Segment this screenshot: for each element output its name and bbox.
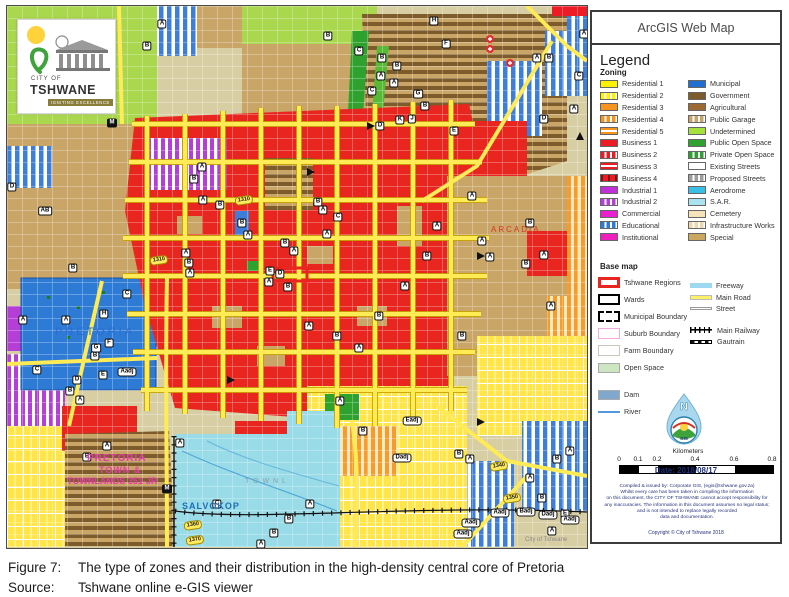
zone-letter-badge: B [284,515,293,524]
zone-letter-badge: B [68,264,77,273]
zone-letter-badge: B [237,219,246,228]
road-number-pill: 1340 [489,461,508,472]
zone-letter-badge: E [449,127,458,136]
source-label: Source: [8,580,55,595]
zone-letter-badge: B [521,260,530,269]
map-place-label: TOWN & [99,465,141,475]
legend-zoning-label: Industrial 2 [622,197,657,206]
legend-zoning-row: Institutional [600,231,688,243]
legend-swatch [598,328,620,339]
zone-letter-badge: G [413,90,423,99]
zone-letter-badge: C [333,213,342,222]
legend-zoning-label: Public Garage [710,115,756,124]
zoning-heading: Zoning [600,68,627,77]
legend-zoning-row: Government [688,90,780,102]
zone-letter-badge: H [99,310,108,319]
legend-swatch [600,210,618,218]
zone-adj-badge: Eadj [403,417,422,426]
scale-ticks: 00.10.20.40.60.8 [602,456,774,464]
zone-letter-badge: C [122,290,131,299]
scale-tick-label: 0.8 [767,456,776,463]
legend-panel: ArcGIS Web Map Legend Zoning Residential… [590,10,782,544]
legend-zoning-label: Residential 2 [622,91,664,100]
zone-letter-badge: A [525,474,534,483]
legend-zoning-row: Residential 2 [600,90,688,102]
scale-tick-label: 0.2 [652,456,661,463]
legend-zoning-label: Municipal [710,79,740,88]
zone-adj-badge: Aadj [560,516,579,525]
map-watermark: City of Tshwane [525,537,567,543]
legend-swatch [688,174,706,182]
legend-basemap-row: Street [690,303,782,315]
map-canvas[interactable]: CITY OF TSHWANE IGNITING EXCELLENCE HFBB… [6,5,588,549]
zone-letter-badge: B [142,42,151,51]
zone-letter-badge: H [429,17,438,26]
legend-zoning-row: Business 1 [600,137,688,149]
legend-swatch [600,162,618,170]
zone-letter-badge: A [264,278,273,287]
legend-swatch [600,92,618,100]
zone-letter-badge: E [265,267,274,276]
zone-letter-badge: B [420,102,429,111]
zone-adj-badge: Dadj [538,511,557,520]
zone-letter-badge: A [322,230,331,239]
zone-adj-badge: Aadj [461,519,480,528]
railway-swatch [690,327,712,333]
legend-swatch [600,115,618,123]
zone-letter-badge: D [375,122,384,131]
zone-letter-badge: B [184,259,193,268]
legend-zoning-label: Business 2 [622,150,657,159]
figure-caption: The type of zones and their distribution… [78,560,564,575]
zone-letter-badge: B [552,455,561,464]
legend-swatch [688,139,706,147]
zone-letter-badge: A [565,447,574,456]
zone-letter-badge: C [354,47,363,56]
zone-letter-badge: B [189,175,198,184]
legend-zoning-label: Institutional [622,233,658,242]
legend-swatch [600,221,618,229]
legend-zoning-label: Business 3 [622,162,657,171]
legend-zoning-row: Aerodrome [688,184,780,196]
legend-zoning-row: Educational [600,220,688,232]
legend-zoning-label: Business 1 [622,138,657,147]
legend-zoning-label: Proposed Streets [710,174,766,183]
legend-zoning-row: Residential 5 [600,125,688,137]
basemap-heading: Base map [600,262,638,271]
legend-zoning-row: Industrial 2 [600,196,688,208]
disclaimer-text: Compiled & issued by: Corporate GIS, (eg… [596,484,778,521]
zone-letter-badge: B [454,450,463,459]
map-place-label: PRETORIA [87,453,147,464]
zone-letter-badge: A [467,192,476,201]
legend-zoning-label: Educational [622,221,660,230]
legend-zoning-row: Proposed Streets [688,172,780,184]
disclaimer-line: any inaccuracies. The information in thi… [596,503,778,509]
legend-zoning-row: Business 3 [600,161,688,173]
legend-swatch [598,363,620,373]
legend-basemap-label: Tshwane Regions [624,278,681,287]
legend-swatch [688,103,706,111]
gis-label: GIS [680,436,688,441]
zone-adj-badge: Aadj [453,530,472,539]
legend-swatch [598,311,620,322]
zone-letter-badge: A [354,344,363,353]
legend-basemap-label: Open Space [624,363,664,372]
scale-tick-label: 0 [617,456,621,463]
legend-zoning-row: Industrial 1 [600,184,688,196]
legend-swatch [600,198,618,206]
zone-letter-badge: J [408,115,416,124]
zone-letter-badge: D [539,115,548,124]
legend-zoning-row: Residential 3 [600,102,688,114]
map-place-label: TOWNLANDS 351-JR [67,476,157,486]
map-place-label: T O W N L [245,478,287,485]
zone-letter-badge: F [105,339,114,348]
legend-heading: Legend [600,52,650,69]
scale-tick-label: 0.6 [729,456,738,463]
legend-zoning-row: Special [688,231,780,243]
legend-zoning-label: Infrastructure Works [710,221,775,230]
legend-swatch [598,277,620,288]
zone-letter-badge: A [579,30,588,39]
zone-letter-badge: B [283,283,292,292]
zone-letter-badge: A [376,72,385,81]
zone-letter-badge: A [181,249,190,258]
legend-basemap-row: Wards [598,291,698,308]
legend-basemap-label: Gautrain [717,337,745,346]
copyright-text: Copyright © City of Tshwane 2018 [592,530,780,536]
legend-basemap-label: Main Railway [717,326,760,335]
scale-tick-label: 0.1 [633,456,642,463]
legend-swatch [688,210,706,218]
zone-letter-badge: F [442,40,451,49]
legend-swatch [598,345,620,356]
legend-zoning-row: Infrastructure Works [688,220,780,232]
legend-swatch [688,221,706,229]
zone-letter-badge: A [185,269,194,278]
zone-letter-badge: D [72,376,81,385]
legend-basemap-row: Tshwane Regions [598,274,698,291]
zone-adj-badge: Aadj [490,509,509,518]
zone-letter-badge: A [18,316,27,325]
zone-letter-badge: A [197,163,206,172]
zone-letter-badge: A [198,196,207,205]
metro-station-badge: M [162,485,172,494]
legend-swatch [598,411,620,413]
legend-zoning-row: Residential 4 [600,113,688,125]
legend-swatch [688,127,706,135]
legend-zoning-row: Commercial [600,208,688,220]
zone-letter-badge: E [98,371,107,380]
zoning-column-left: Residential 1Residential 2Residential 3R… [600,78,688,243]
legend-basemap-label: Main Road [716,293,751,302]
zone-letter-badge: A [465,455,474,464]
legend-swatch [688,115,706,123]
zone-letter-badge: B [90,352,99,361]
road-number-pill: 1370 [185,535,204,546]
zoning-column-right: MunicipalGovernmentAgriculturalPublic Ga… [688,78,780,243]
legend-swatch [600,80,618,88]
zone-letter-badge: B [392,62,401,71]
legend-zoning-label: Commercial [622,209,660,218]
legend-zoning-label: Agricultural [710,103,746,112]
legend-swatch [600,233,618,241]
zone-letter-badge: AB [38,207,52,216]
road-number-pill: 1360 [183,520,202,531]
legend-zoning-row: Private Open Space [688,149,780,161]
legend-zoning-label: Private Open Space [710,150,774,159]
zone-letter-badge: B [332,332,341,341]
zone-letter-badge: A [400,282,409,291]
legend-basemap-label: Dam [624,390,639,399]
legend-zoning-label: Residential 5 [622,127,664,136]
legend-zoning-row: Agricultural [688,102,780,114]
legend-zoning-label: S.A.R. [710,197,731,206]
legend-basemap-label: River [624,407,641,416]
zone-letter-badge: A [547,527,556,536]
legend-swatch [690,283,712,288]
legend-zoning-label: Business 4 [622,174,657,183]
legend-zoning-row: Cemetery [688,208,780,220]
legend-basemap-row: Freeway [690,280,782,292]
zone-letter-badge: A [61,316,70,325]
zone-letter-badge: B [280,239,289,248]
zone-letter-badge: B [377,54,386,63]
legend-basemap-label: Suburb Boundary [624,329,680,338]
legend-basemap-label: Street [716,304,735,313]
basemap-column-right: FreewayMain RoadStreetMain RailwayGautra… [690,280,782,348]
zone-adj-badge: Aadj [117,368,136,377]
legend-swatch [600,186,618,194]
legend-basemap-row: Main Road [690,292,782,304]
disclaimer-line: data and documentation. [596,515,778,521]
legend-zoning-label: Cemetery [710,209,741,218]
scale-units-label: Kilometers [602,448,774,455]
legend-zoning-label: Residential 3 [622,103,664,112]
legend-swatch [598,294,620,305]
legend-swatch [688,198,706,206]
zone-letter-badge: B [65,387,74,396]
zone-letter-badge: B [215,201,224,210]
zone-letter-badge: B [457,332,466,341]
road-number-pill: 1310 [149,255,168,266]
zone-letter-badge: A [546,302,555,311]
zone-letter-badge: D [275,270,284,279]
zone-letter-badge: A [243,231,252,240]
legend-swatch [688,233,706,241]
north-arrow-logo: N GIS [660,392,708,455]
zone-letter-badge: C [32,366,41,375]
zone-letter-badge: A [485,253,494,262]
legend-zoning-label: Government [710,91,750,100]
figure-page: CITY OF TSHWANE IGNITING EXCELLENCE HFBB… [0,0,789,597]
legend-zoning-label: Residential 4 [622,115,664,124]
legend-zoning-label: Industrial 1 [622,186,657,195]
map-place-label: SALVOKOP [182,501,240,511]
legend-zoning-label: Public Open Space [710,138,772,147]
legend-swatch [600,139,618,147]
legend-zoning-row: Public Open Space [688,137,780,149]
scale-tick-label: 0.4 [690,456,699,463]
metro-station-badge: M [107,119,117,128]
legend-zoning-row: Business 2 [600,149,688,161]
zone-letter-badge: A [477,237,486,246]
legend-swatch [688,80,706,88]
north-letter: N [680,401,688,413]
zone-letter-badge: A [175,439,184,448]
legend-basemap-label: Farm Boundary [624,346,674,355]
legend-swatch [600,127,618,135]
zone-letter-badge: A [75,396,84,405]
legend-swatch [688,151,706,159]
map-place-label: PRETORIA [55,326,135,338]
source-text: Tshwane online e-GIS viewer [78,580,253,595]
zone-letter-badge: B [323,32,332,41]
legend-swatch [598,390,620,400]
legend-basemap-label: Freeway [716,281,744,290]
legend-zoning-label: Undetermined [710,127,755,136]
zone-letter-badge: A [532,54,541,63]
legend-swatch [688,162,706,170]
figure-label: Figure 7: [8,560,61,575]
legend-swatch [690,295,712,300]
map-title: ArcGIS Web Map [592,12,780,45]
zone-letter-badge: A [289,247,298,256]
legend-basemap-row: Gautrain [690,336,782,348]
legend-basemap-row: Farm Boundary [598,342,698,359]
map-place-label: ARCADIA [491,225,541,234]
legend-swatch [690,307,712,310]
zone-letter-badge: A [318,206,327,215]
legend-basemap-row: Open Space [598,359,698,376]
zone-letter-badge: A [157,20,166,29]
legend-zoning-row: Undetermined [688,125,780,137]
zone-letter-badge: A [256,540,265,549]
road-number-pill: 1310 [234,195,253,206]
legend-zoning-row: S.A.R. [688,196,780,208]
legend-zoning-row: Existing Streets [688,161,780,173]
legend-zoning-row: Public Garage [688,113,780,125]
zone-letter-badge: A [304,322,313,331]
legend-basemap-label: Municipal Boundary [624,312,687,321]
zone-letter-badge: C [367,87,376,96]
zone-letter-badge: K [395,116,404,125]
zone-adj-badge: Badj [516,508,535,517]
legend-swatch [688,186,706,194]
zone-letter-badge: B [537,494,546,503]
legend-zoning-label: Existing Streets [710,162,760,171]
legend-zoning-row: Residential 1 [600,78,688,90]
map-date: Date: 2018/08/17 [592,466,780,475]
legend-zoning-row: Municipal [688,78,780,90]
legend-swatch [688,92,706,100]
zone-letter-badge: A [102,442,111,451]
zone-letter-badge: A [335,397,344,406]
legend-zoning-label: Aerodrome [710,186,746,195]
legend-basemap-row: Suburb Boundary [598,325,698,342]
zone-letter-badge: A [389,79,398,88]
zone-letter-badge: D [7,183,16,192]
legend-basemap-row: Municipal Boundary [598,308,698,325]
legend-swatch [600,174,618,182]
zone-letter-badge: A [569,105,578,114]
legend-basemap-label: Wards [624,295,645,304]
zone-letter-badge: B [544,54,553,63]
zone-letter-badge: B [374,312,383,321]
map-annotations: HFBBAACGBJKDEDACABABCABABAACHGFBEDBACDBA… [7,6,587,548]
legend-basemap-row: Main Railway [690,325,782,337]
legend-zoning-row: Business 4 [600,172,688,184]
zone-letter-badge: B [358,427,367,436]
legend-zoning-label: Special [710,233,734,242]
zone-adj-badge: Dadj [392,454,411,463]
zone-letter-badge: B [422,252,431,261]
legend-zoning-label: Residential 1 [622,79,664,88]
zone-letter-badge: A [305,500,314,509]
legend-swatch [600,151,618,159]
road-number-pill: 1350 [502,493,521,504]
legend-swatch [600,103,618,111]
zone-letter-badge: A [432,222,441,231]
disclaimer-line: on this document, the CITY OF TSHWANE ca… [596,496,778,502]
gautrain-swatch [690,340,712,344]
zone-letter-badge: C [574,72,583,81]
zone-letter-badge: B [269,529,278,538]
zone-letter-badge: A [539,251,548,260]
